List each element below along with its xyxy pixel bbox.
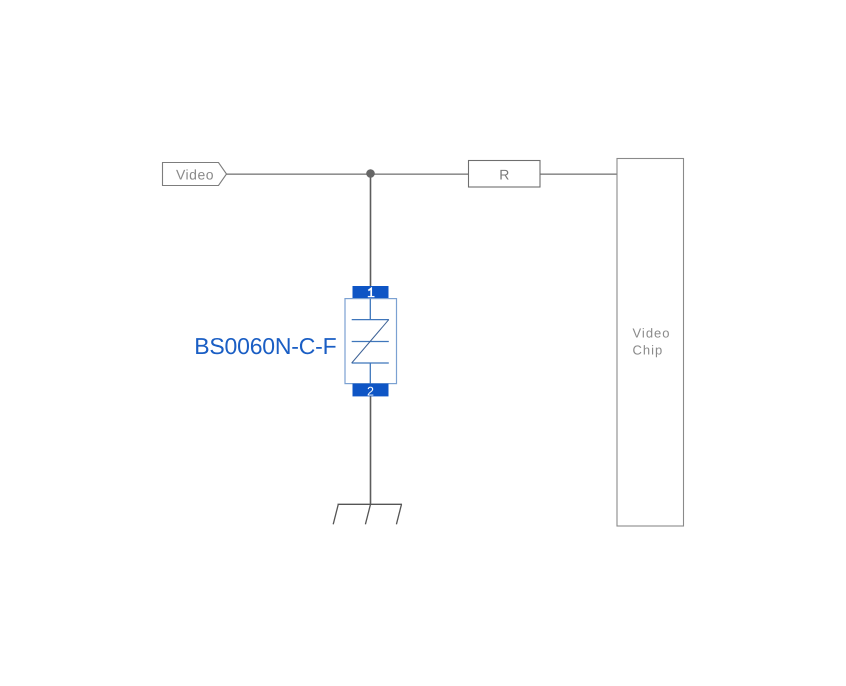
svg-text:BS0060N-C-F: BS0060N-C-F [194, 333, 336, 359]
svg-text:Chip: Chip [633, 342, 664, 357]
svg-text:2: 2 [367, 385, 374, 399]
svg-text:Video: Video [176, 167, 214, 183]
svg-text:Video: Video [633, 326, 671, 341]
svg-text:R: R [499, 167, 509, 183]
